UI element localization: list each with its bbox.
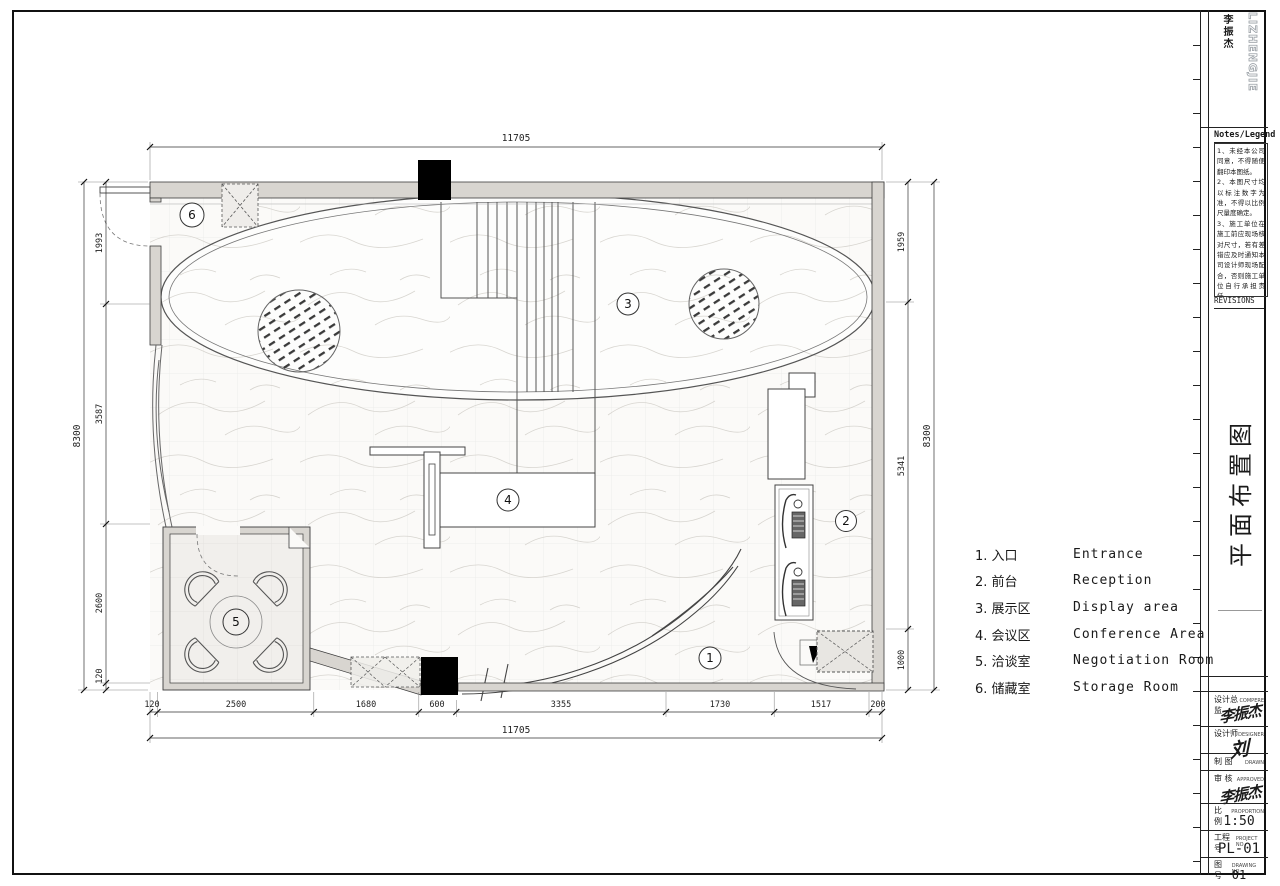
note-line-1: 1、未经本公司同意，不得随便翻印本图纸。 <box>1217 146 1265 177</box>
legend-en: Conference Area <box>1073 627 1205 642</box>
notes-header: Notes/Legend <box>1214 130 1264 143</box>
divider <box>1200 753 1268 754</box>
legend-item-display-area: 3. 展示区 Display area <box>975 594 1214 621</box>
legend-item-storage-room: 6. 储藏室 Storage Room <box>975 674 1214 701</box>
legend-item-entrance: 1. 入口 Entrance <box>975 541 1214 568</box>
drawn-label-en: DRAWN <box>1245 760 1264 766</box>
divider <box>1218 610 1262 611</box>
legend-cn: 3. 展示区 <box>975 598 1073 617</box>
divider <box>1200 830 1268 831</box>
legend-en: Entrance <box>1073 547 1144 562</box>
divider <box>1200 127 1268 128</box>
legend-cn: 5. 洽谈室 <box>975 651 1073 670</box>
drawingno-value: 01 <box>1214 868 1264 882</box>
divider <box>1200 857 1268 858</box>
drawing-title: 平面布置图 <box>1221 417 1261 567</box>
logo-wordmark: LIZHENGJIE <box>1246 12 1259 92</box>
legend-cn: 4. 会议区 <box>975 625 1073 644</box>
drawn-label-cn: 制 图 <box>1214 756 1233 767</box>
revisions-label: REVISIONS <box>1214 296 1264 309</box>
divider <box>1200 770 1268 771</box>
divider <box>1200 803 1268 804</box>
divider <box>1200 726 1268 727</box>
legend-item-conference-area: 4. 会议区 Conference Area <box>975 621 1214 648</box>
notes-box: 1、未经本公司同意，不得随便翻印本图纸。 2、本图尺寸均以标注数字为准，不得以比… <box>1214 143 1268 297</box>
legend-item-negotiation-room: 5. 洽谈室 Negotiation Room <box>975 647 1214 674</box>
drawing-sheet: 1 2 3 4 5 6 <box>0 0 1280 886</box>
room-legend: 1. 入口 Entrance 2. 前台 Reception 3. 展示区 Di… <box>975 541 1214 701</box>
legend-cn: 2. 前台 <box>975 571 1073 590</box>
titlebar-divider-outer <box>1200 10 1201 875</box>
legend-en: Negotiation Room <box>1073 653 1214 668</box>
logo-chinese: 李振杰 <box>1219 14 1234 50</box>
sheet-border <box>12 10 1266 875</box>
legend-item-reception: 2. 前台 Reception <box>975 568 1214 595</box>
titleblock-row-drawn: 制 图 DRAWN <box>1214 756 1264 767</box>
legend-cn: 6. 储藏室 <box>975 678 1073 697</box>
legend-en: Display area <box>1073 600 1179 615</box>
note-line-3: 3、施工单位在施工前应现场核对尺寸，若有差错应及时通知本司设计师现场配合，否则施… <box>1217 219 1265 297</box>
legend-en: Reception <box>1073 573 1152 588</box>
legend-cn: 1. 入口 <box>975 545 1073 564</box>
project-value: PL-01 <box>1214 841 1264 857</box>
proportion-value: 1:50 <box>1214 814 1264 829</box>
approved-label-cn: 审 核 <box>1214 773 1233 784</box>
note-line-2: 2、本图尺寸均以标注数字为准，不得以比例尺量度确定。 <box>1217 177 1265 219</box>
legend-en: Storage Room <box>1073 680 1179 695</box>
titlebar-divider-inner <box>1208 10 1209 875</box>
